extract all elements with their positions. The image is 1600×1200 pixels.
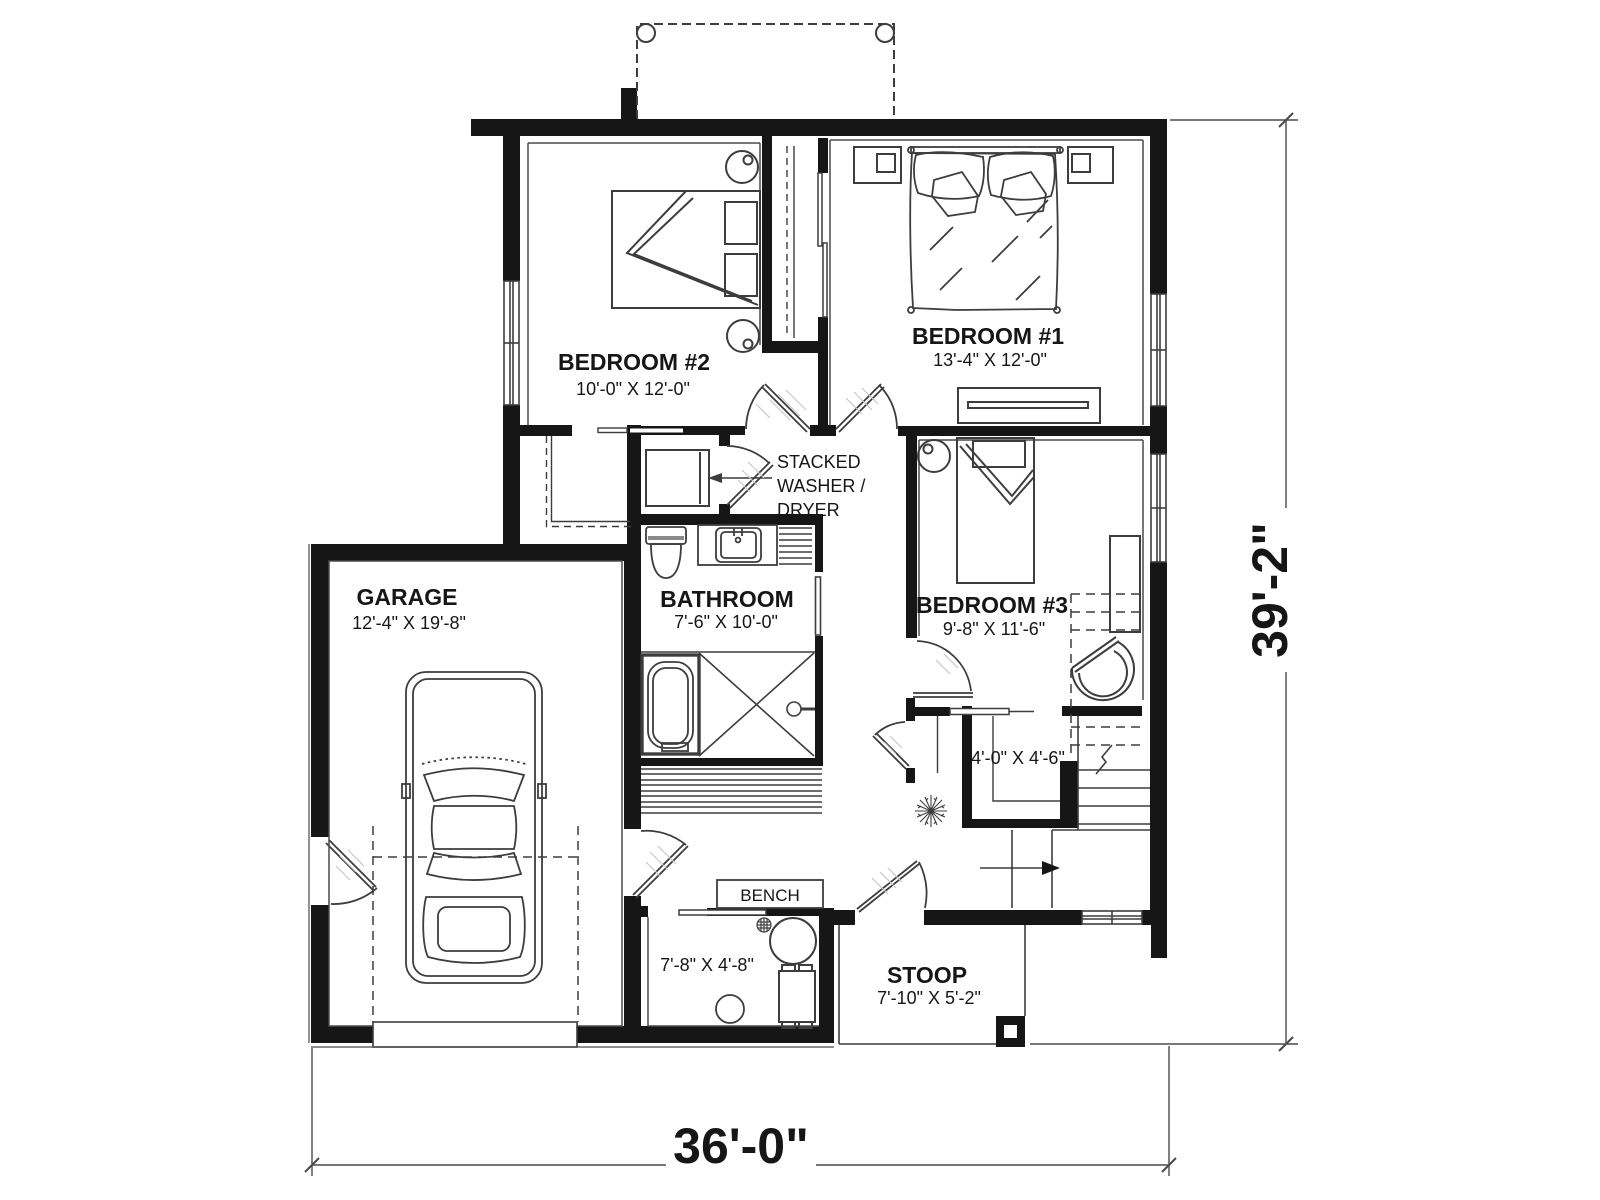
svg-text:4'-0" X 4'-6": 4'-0" X 4'-6" xyxy=(971,748,1065,768)
svg-text:BEDROOM #1: BEDROOM #1 xyxy=(912,323,1064,349)
svg-text:7'-8" X 4'-8": 7'-8" X 4'-8" xyxy=(660,955,754,975)
svg-text:DRYER: DRYER xyxy=(777,500,840,520)
svg-text:7'-6" X 10'-0": 7'-6" X 10'-0" xyxy=(674,612,778,632)
svg-text:9'-8" X 11'-6": 9'-8" X 11'-6" xyxy=(943,619,1045,639)
svg-text:BATHROOM: BATHROOM xyxy=(660,586,794,612)
svg-text:10'-0" X 12'-0": 10'-0" X 12'-0" xyxy=(576,379,690,399)
svg-text:GARAGE: GARAGE xyxy=(357,584,458,610)
svg-text:STACKED: STACKED xyxy=(777,452,861,472)
svg-text:12'-4" X 19'-8": 12'-4" X 19'-8" xyxy=(352,613,466,633)
svg-text:STOOP: STOOP xyxy=(887,962,967,988)
svg-text:39'-2": 39'-2" xyxy=(1242,522,1298,658)
svg-text:WASHER /: WASHER / xyxy=(777,476,865,496)
svg-text:13'-4" X 12'-0": 13'-4" X 12'-0" xyxy=(933,350,1047,370)
svg-text:7'-10" X 5'-2": 7'-10" X 5'-2" xyxy=(877,988,981,1008)
svg-text:BEDROOM #3: BEDROOM #3 xyxy=(916,592,1068,618)
svg-text:BEDROOM #2: BEDROOM #2 xyxy=(558,349,710,375)
svg-text:36'-0": 36'-0" xyxy=(673,1118,809,1174)
svg-text:BENCH: BENCH xyxy=(740,886,800,905)
